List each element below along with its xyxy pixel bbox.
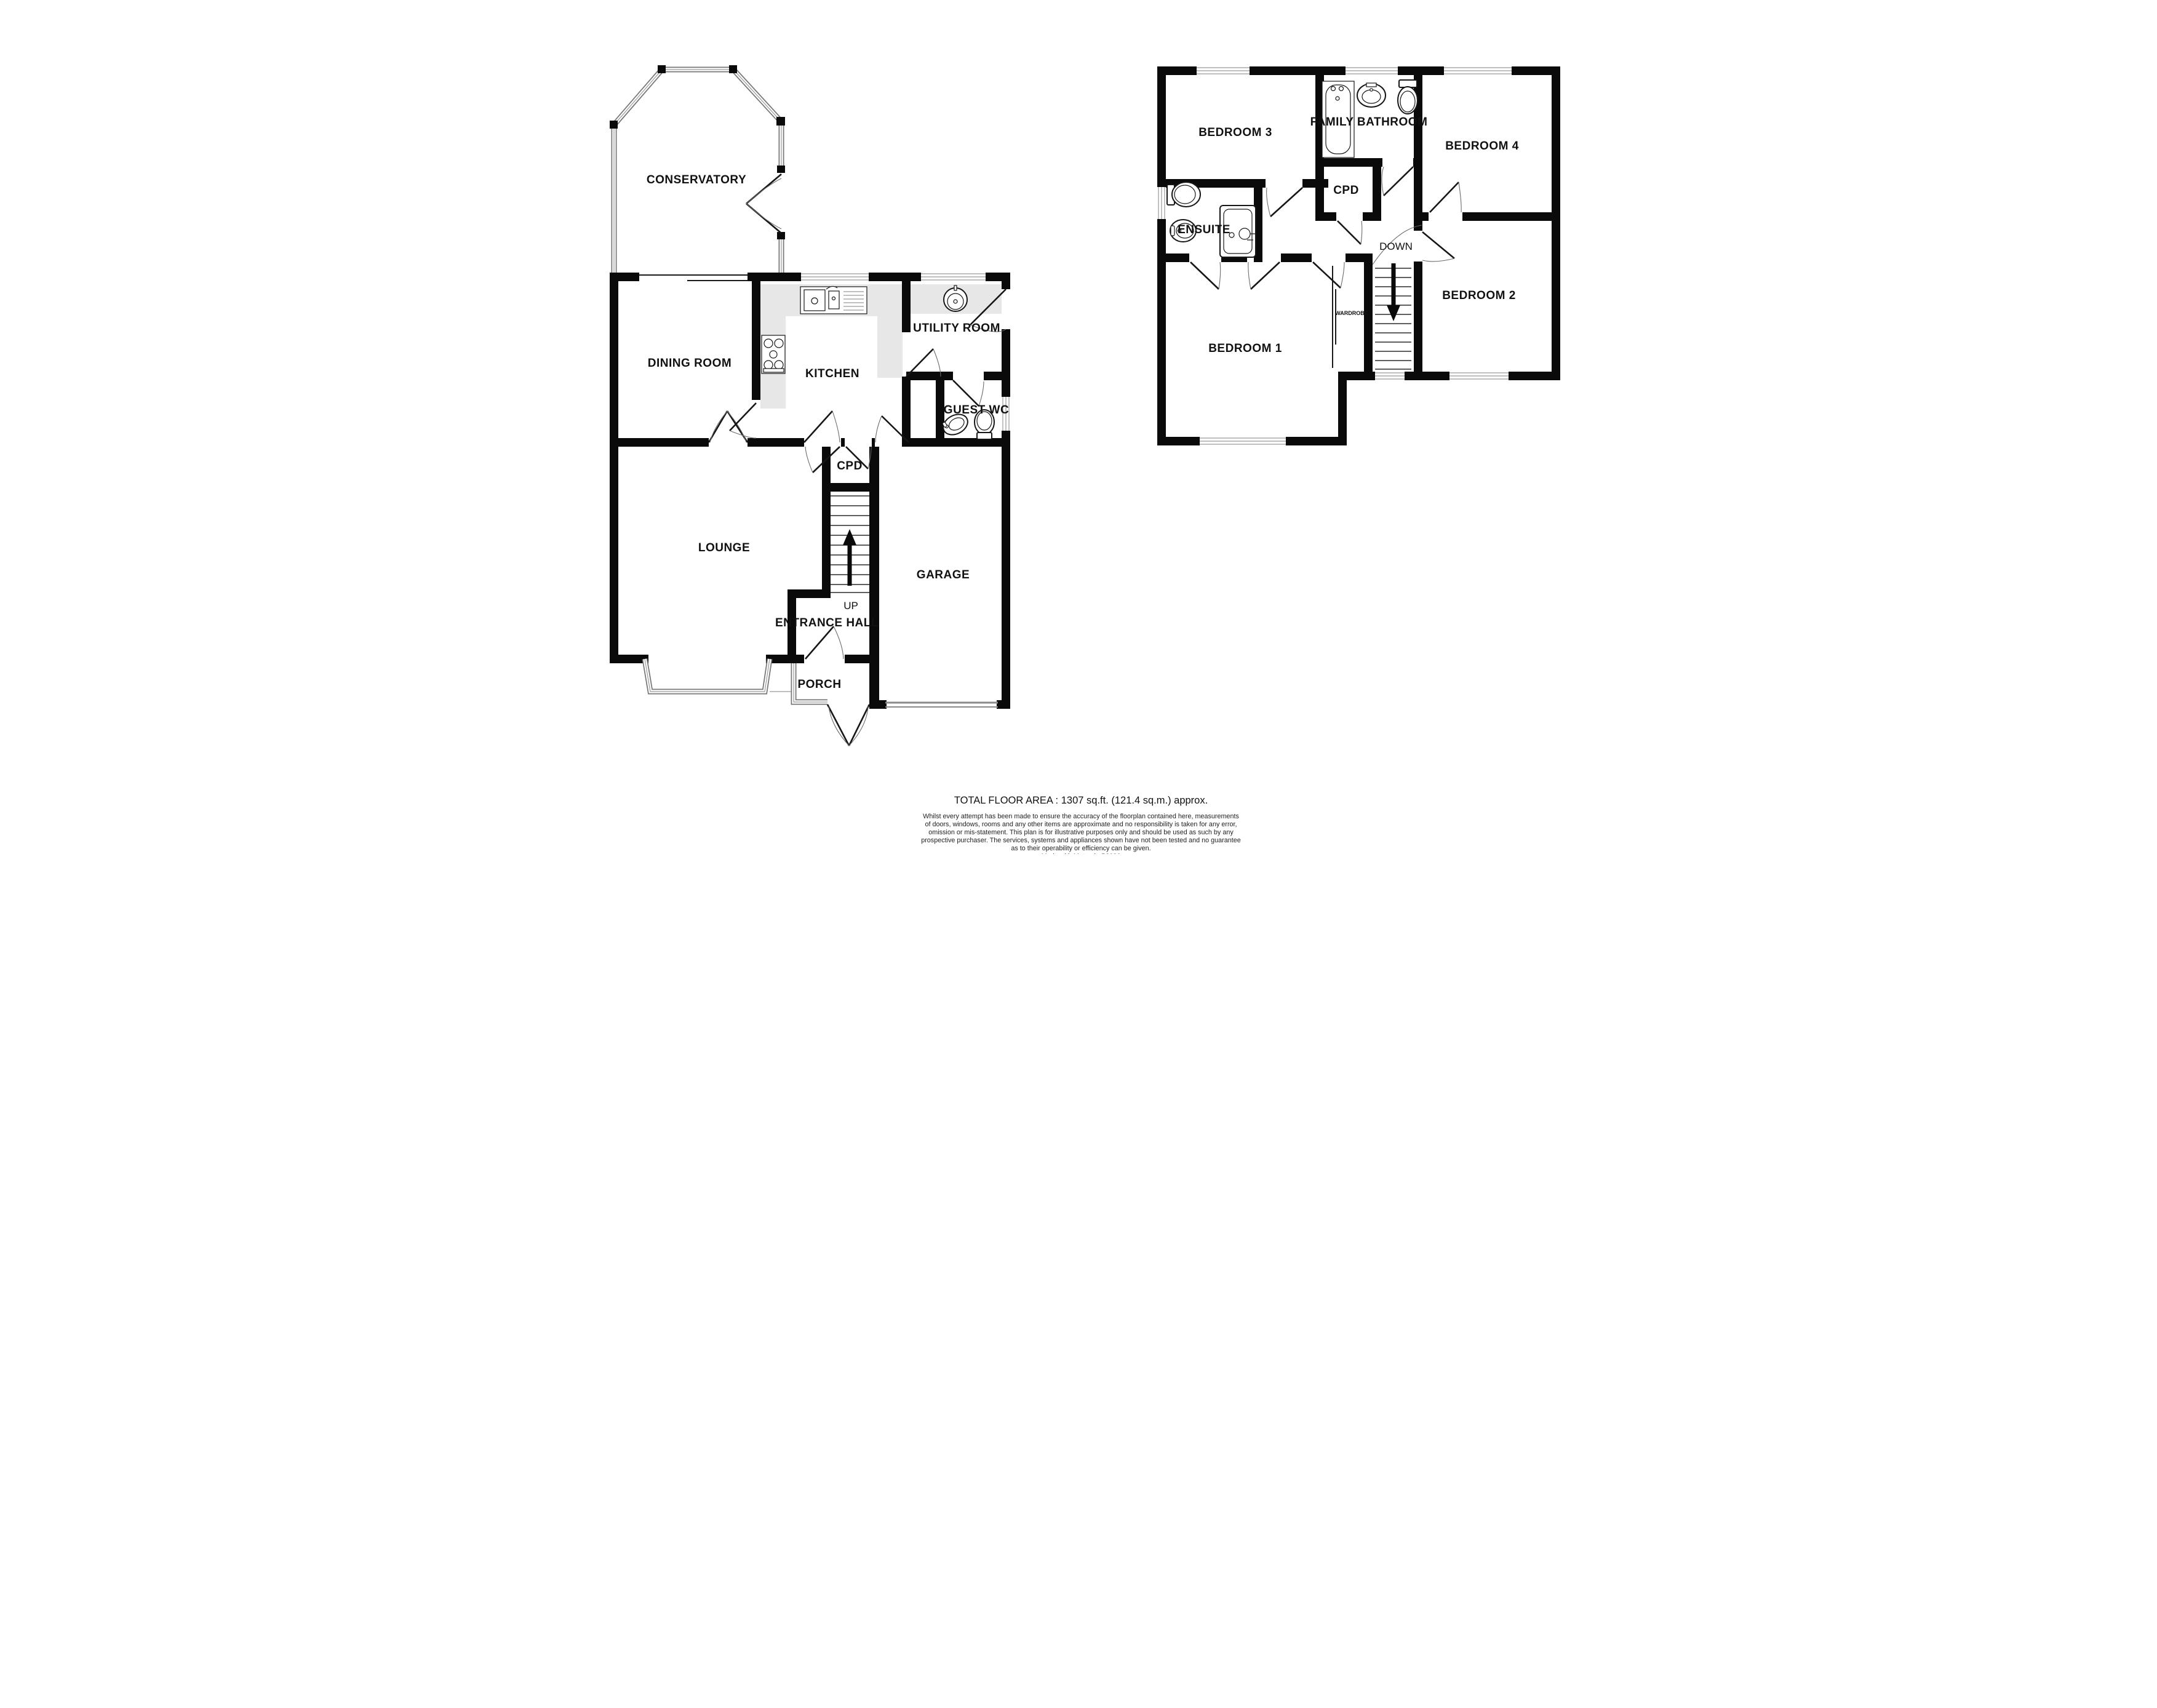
room-label-porch: PORCH [797,678,841,691]
down-arrow-icon [1387,305,1400,321]
door-swing-bedroom2 [1422,232,1454,261]
disclaimer-line-5: as to their operability or efficiency ca… [1011,845,1150,852]
room-label-kitchen: KITCHEN [805,367,859,380]
floorplan-image: CONSERVATORY DINING ROOM KITCHEN UTILITY… [540,0,1618,854]
room-label-family-bathroom: FAMILY BATHROOM [1310,116,1427,129]
room-label-garage: GARAGE [916,569,969,581]
credit-line: Made with Metropix ©2026 [1041,853,1120,854]
bedroom3-window [1197,66,1250,75]
room-label-utility-room: UTILITY ROOM [913,322,1000,335]
bedroom2-window [1449,372,1509,380]
room-label-cpd-ground: CPD [837,460,863,473]
disclaimer-line-3: omission or mis-statement. This plan is … [928,829,1234,836]
disclaimer-line-4: prospective purchaser. The services, sys… [921,837,1241,844]
total-floor-area: TOTAL FLOOR AREA : 1307 sq.ft. (121.4 sq… [954,795,1207,806]
room-label-cpd-first: CPD [1333,184,1359,197]
room-label-bedroom4: BEDROOM 4 [1445,140,1519,153]
disclaimer-line-1: Whilst every attempt has been made to en… [923,813,1239,820]
up-arrow-icon [843,529,856,545]
utility-window [921,273,986,281]
door-swing-bedroom1-b [1313,262,1344,288]
door-swing-ensuite [1190,262,1221,289]
door-swing-front-door [805,626,843,659]
staircase-up [831,496,869,593]
door-swing-guest-wc [953,380,984,406]
room-label-wardrobe: WARDROBE [1335,310,1368,316]
disclaimer-line-2: of doors, windows, rooms and any other i… [925,821,1237,828]
stairs-up-label: UP [843,600,858,612]
door-swing-bedroom4 [1430,182,1461,212]
staircase-down [1375,263,1411,369]
bedroom4-window [1444,66,1512,75]
ground-walls [610,273,1010,709]
ensuite-toilet-icon [1167,182,1200,207]
lounge-bay-window [645,659,794,692]
room-label-conservatory: CONSERVATORY [646,174,746,186]
kitchen-sink-icon [800,286,867,314]
room-label-ensuite: ENSUITE [1178,223,1230,236]
door-swing-kitchen-hall [804,411,840,473]
room-label-bedroom2: BEDROOM 2 [1442,289,1516,302]
bathroom-toilet-icon [1398,80,1417,114]
door-swing-cpd-first [1338,221,1362,244]
garage-door [885,703,998,707]
bedroom1-window [1200,437,1286,445]
room-label-bedroom1: BEDROOM 1 [1208,342,1282,355]
floorplan-page: CONSERVATORY DINING ROOM KITCHEN UTILITY… [540,0,1618,854]
footer: TOTAL FLOOR AREA : 1307 sq.ft. (121.4 sq… [921,795,1241,854]
bathroom-window [1346,66,1398,75]
hob-icon [762,335,785,373]
door-swing-dining-lounge [709,411,748,442]
room-label-lounge: LOUNGE [698,541,749,554]
room-label-dining-room: DINING ROOM [647,357,731,370]
door-swing-bedroom3 [1266,188,1302,217]
door-swing-bedroom1-a [1248,262,1279,289]
stairs-down-label: DOWN [1379,241,1413,252]
room-label-bedroom3: BEDROOM 3 [1198,126,1272,139]
conservatory-french-doors [746,174,781,233]
ensuite-window [1157,187,1166,219]
kitchen-window [801,273,869,281]
door-swing-porch-entry [827,704,869,746]
bathroom-sink-icon [1357,83,1386,107]
room-label-guest-wc: GUEST WC [943,404,1008,417]
conservatory-window-walls [610,65,785,278]
room-label-entrance-hall: ENTRANCE HALL [775,617,879,629]
landing-window [1375,372,1405,380]
door-swing-bathroom [1382,167,1413,196]
